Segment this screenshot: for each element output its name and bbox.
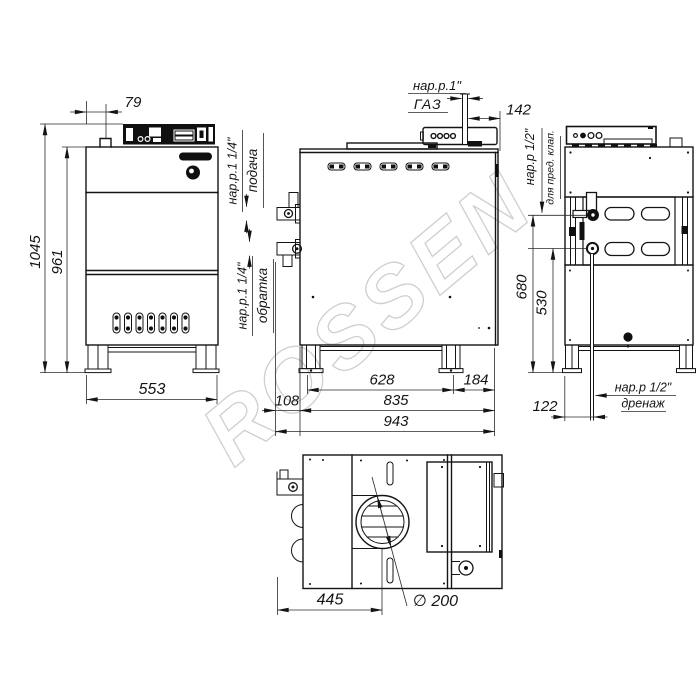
front-control-panel	[123, 124, 215, 145]
technical-drawing: ROSSEN	[0, 0, 700, 700]
dim-flue-diameter: ∅ 200	[413, 593, 458, 610]
back-legs	[563, 345, 696, 373]
top-slot-lower	[387, 558, 393, 583]
front-vent-slots	[113, 313, 189, 333]
dim-184: 184	[463, 372, 488, 389]
dim-835: 835	[383, 392, 409, 409]
gas-pipe	[461, 94, 470, 145]
label-gas: ГАЗ	[414, 96, 442, 112]
drain-pipe	[590, 254, 594, 420]
dim-943: 943	[383, 413, 409, 430]
label-safety-thread: нар.р 1/2"	[523, 128, 537, 185]
label-drain: дренаж	[621, 397, 666, 411]
drain-connection	[587, 243, 598, 254]
dim-142: 142	[506, 102, 532, 119]
supply-pipe	[277, 193, 300, 224]
top-view: 445 ∅ 200	[277, 455, 504, 615]
front-view: 79 1045 961 553	[27, 94, 219, 404]
dim-445: 445	[317, 592, 344, 609]
label-supply-thread: нар.р.1 1/4"	[226, 137, 240, 204]
dim-530: 530	[534, 290, 551, 316]
top-screws	[309, 459, 445, 586]
dim-79: 79	[125, 94, 142, 111]
dim-680: 680	[514, 274, 531, 300]
dim-553: 553	[139, 381, 166, 398]
label-gas-thread: нар.р.1"	[413, 78, 462, 93]
front-vent-oval	[179, 153, 212, 161]
label-safety-valve: для пред. клап.	[545, 130, 557, 205]
back-view: нар.р 1/2" для пред. клап. 680 530 122 н…	[514, 127, 696, 422]
drawing-canvas: ROSSEN	[0, 0, 700, 700]
top-right-pipe	[452, 561, 474, 575]
dim-108: 108	[275, 394, 299, 410]
label-return-thread: нар.р.1 1/4"	[236, 262, 250, 329]
side-rear-tab	[496, 164, 499, 177]
back-screws-upper	[569, 151, 689, 193]
return-pipe	[277, 240, 301, 267]
dim-1045: 1045	[27, 235, 44, 269]
top-right-mark	[499, 550, 503, 558]
back-top-stub	[670, 138, 682, 147]
label-supply: подача	[245, 148, 260, 192]
side-vent-slots	[328, 163, 449, 170]
burner-knob	[186, 166, 200, 180]
back-screws-lower	[569, 270, 689, 348]
side-control-box	[421, 128, 498, 149]
front-legs	[85, 345, 219, 373]
label-return: обратка	[255, 267, 270, 323]
top-panel-box	[427, 462, 492, 552]
top-slot-upper	[387, 462, 393, 485]
back-control-panel	[567, 127, 658, 147]
dim-122: 122	[532, 398, 558, 415]
dim-628: 628	[369, 372, 395, 389]
dim-961: 961	[49, 249, 66, 274]
flue-opening	[356, 496, 409, 549]
top-left-connections	[277, 470, 303, 562]
label-drain-thread: нар.р 1/2"	[615, 381, 672, 395]
